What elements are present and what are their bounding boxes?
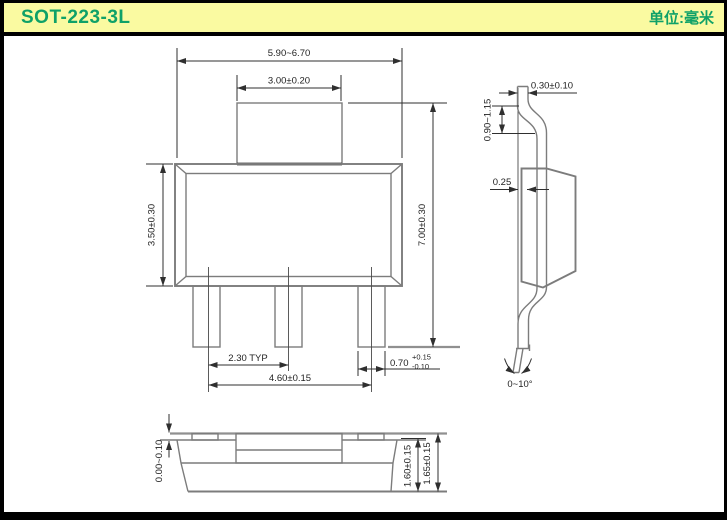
package-outline-drawing: 5.90~6.70 3.00±0.20 3.50±0.30 7.00±0.30 (4, 3, 724, 512)
dim-lead-angle-label: 0~10° (507, 379, 532, 390)
dim-lead-thickness: 0.30±0.10 (499, 81, 577, 94)
dim-body-height-label: 3.50±0.30 (147, 204, 158, 246)
top-view: 5.90~6.70 3.00±0.20 3.50±0.30 7.00±0.30 (146, 48, 460, 392)
dim-foot-offset: 0.25 (490, 177, 549, 190)
front-body-sides (177, 440, 397, 492)
lead-1-outline (193, 286, 220, 347)
dim-overall-width-label: 5.90~6.70 (268, 48, 311, 59)
dim-lead-thickness-label: 0.30±0.10 (531, 81, 573, 92)
dim-lead-span-label: 4.60±0.15 (269, 373, 311, 384)
dim-overall-height-label: 7.00±0.30 (417, 204, 428, 246)
dim-overall-thickness: 1.65±0.15 (422, 434, 438, 492)
dim-lead-width: 0.70+0.15-0.10 (358, 351, 440, 376)
dim-lead-span: 4.60±0.15 (209, 373, 372, 385)
angle-arc-right (522, 359, 532, 374)
dim-lead-pitch-label: 2.30 TYP (228, 353, 267, 364)
dim-body-height: 3.50±0.30 (146, 164, 173, 286)
dim-overall-thickness-label: 1.65±0.15 (422, 442, 433, 484)
dim-tab-length-label: 0.90~1.15 (483, 99, 494, 142)
tab-outline (237, 103, 342, 164)
body-inner-outline (186, 174, 391, 277)
dim-standoff-label: 0.00~0.10 (154, 440, 165, 483)
dim-foot-offset-label: 0.25 (493, 177, 512, 188)
dim-standoff: 0.00~0.10 (154, 414, 169, 482)
page: SOT-223-3L 单位:毫米 5.9 (0, 0, 727, 520)
dim-lead-pitch: 2.30 TYP (209, 353, 289, 365)
dim-tab-width-label: 3.00±0.20 (268, 76, 310, 87)
dim-tab-width: 3.00±0.20 (237, 75, 341, 101)
dim-body-thickness-label: 1.60±0.15 (403, 445, 414, 487)
dim-lead-width-label: 0.70+0.15-0.10 (390, 353, 431, 372)
side-view: 0~10° 0.30±0.10 0.90~1.15 0.25 (483, 81, 578, 391)
dim-overall-height: 7.00±0.30 (348, 103, 460, 347)
front-view: 0.00~0.10 1.60±0.15 1.65±0.15 (154, 414, 447, 492)
front-tab (236, 434, 342, 464)
side-body-outline (522, 169, 576, 288)
